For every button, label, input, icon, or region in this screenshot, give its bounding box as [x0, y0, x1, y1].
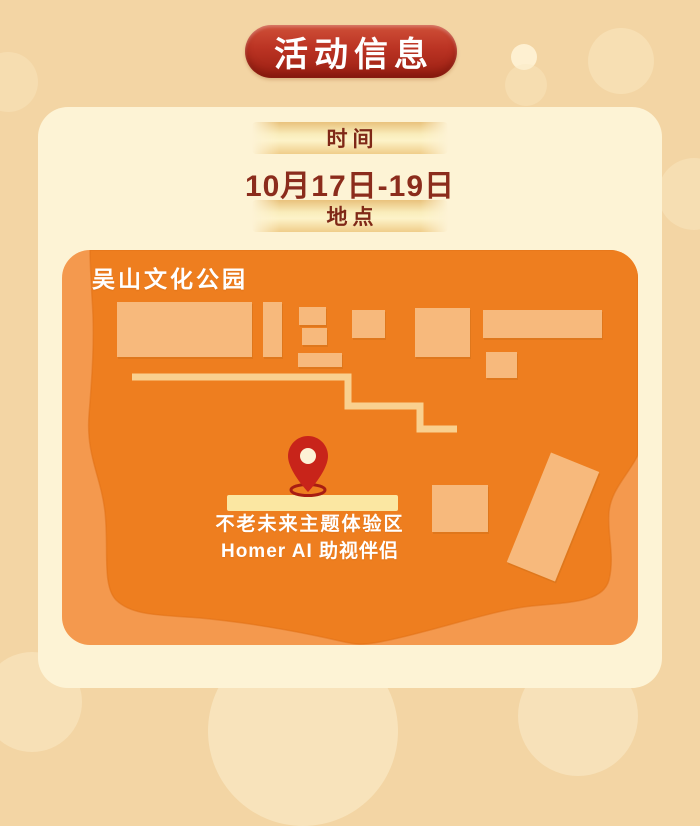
bokeh-circle: [511, 44, 537, 70]
time-label-banner: 时间: [252, 122, 448, 154]
location-label-banner: 地点: [252, 200, 448, 232]
bokeh-circle: [505, 64, 547, 106]
event-date: 10月17日-19日: [38, 161, 662, 205]
building-block: [299, 307, 326, 325]
building-block: [415, 308, 470, 357]
bokeh-circle: [588, 28, 654, 94]
venue-name-line2: Homer AI 助视伴侣: [178, 536, 442, 563]
bokeh-circle: [658, 158, 700, 230]
building-block: [302, 328, 327, 345]
building-block: [117, 302, 252, 357]
building-block: [352, 310, 385, 338]
building-block: [486, 352, 517, 378]
location-label: 地点: [322, 201, 379, 231]
park-map: 吴山文化公园 不老未来主题体验区 Homer AI 助视伴侣: [62, 250, 638, 645]
building-block: [263, 302, 282, 357]
section-title-label: 活动信息: [268, 27, 434, 76]
venue-name-line1: 不老未来主题体验区: [178, 509, 442, 536]
building-block: [483, 310, 602, 338]
park-map-illustration: [62, 250, 638, 645]
bokeh-circle: [0, 52, 38, 112]
time-label: 时间: [322, 123, 379, 153]
building-block: [298, 353, 342, 367]
section-title-badge: 活动信息: [245, 25, 457, 78]
map-title: 吴山文化公园: [92, 260, 248, 294]
